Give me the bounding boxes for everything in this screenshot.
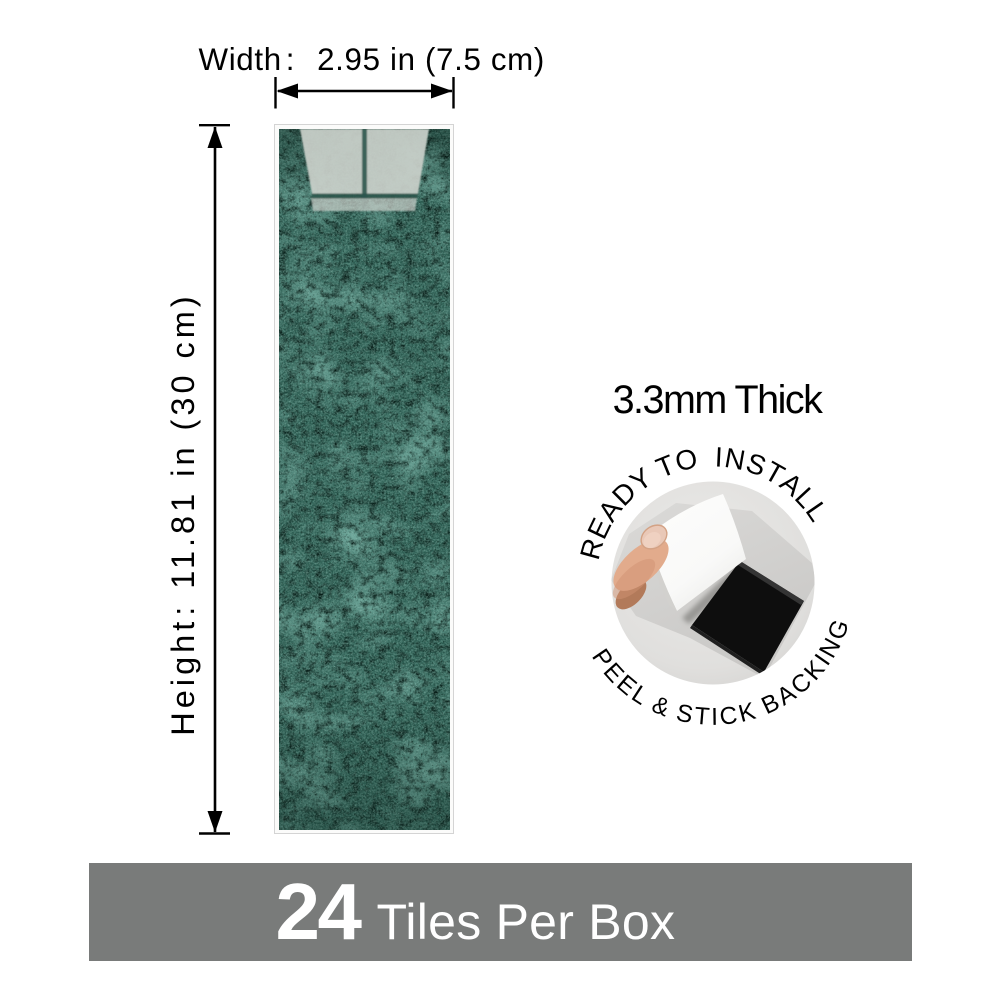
svg-text:S: S: [674, 699, 696, 729]
svg-text:&: &: [648, 691, 674, 722]
svg-text:K: K: [736, 698, 759, 728]
svg-text:I: I: [711, 704, 718, 731]
svg-text:I: I: [714, 441, 723, 472]
svg-text:C: C: [718, 702, 739, 731]
svg-text:T: T: [693, 703, 710, 731]
